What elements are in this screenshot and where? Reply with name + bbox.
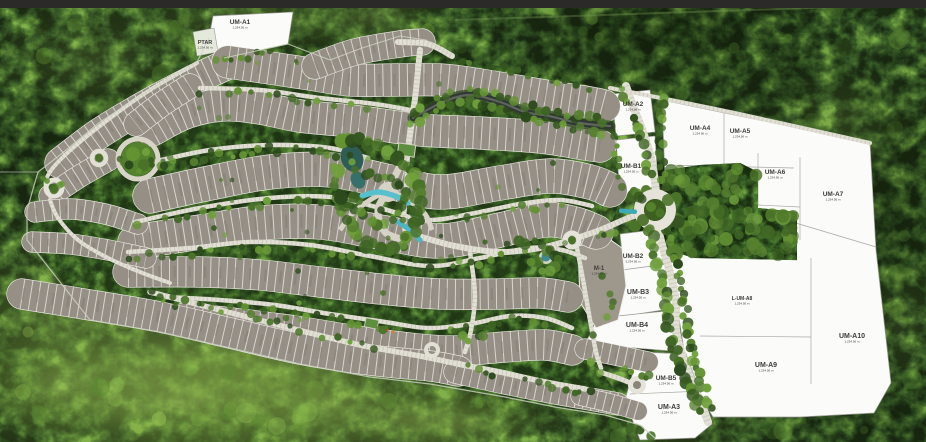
svg-text:1,234.56 m: 1,234.56 m xyxy=(692,132,708,136)
svg-text:1,234.56 m: 1,234.56 m xyxy=(658,382,674,386)
svg-text:1,234.56 m: 1,234.56 m xyxy=(758,369,774,373)
svg-text:1,234.56 m: 1,234.56 m xyxy=(629,329,645,333)
svg-text:1,234.56 m: 1,234.56 m xyxy=(625,260,641,264)
svg-text:1,234.56 m: 1,234.56 m xyxy=(232,26,248,30)
svg-text:1,234.56 m: 1,234.56 m xyxy=(661,411,677,415)
svg-text:1,234.56 m: 1,234.56 m xyxy=(625,108,641,112)
svg-text:1,234.56 m: 1,234.56 m xyxy=(844,340,860,344)
svg-text:1,234.56 m: 1,234.56 m xyxy=(825,198,841,202)
svg-text:1,234.56 m: 1,234.56 m xyxy=(623,170,639,174)
svg-text:1,234.56 m: 1,234.56 m xyxy=(591,272,607,276)
svg-text:1,234.56 m: 1,234.56 m xyxy=(732,135,748,139)
svg-text:1,234.56 m: 1,234.56 m xyxy=(767,176,783,180)
svg-text:1,234.56 m: 1,234.56 m xyxy=(197,46,213,50)
svg-text:1,234.56 m: 1,234.56 m xyxy=(734,302,750,306)
svg-text:1,234.56 m: 1,234.56 m xyxy=(630,296,646,300)
